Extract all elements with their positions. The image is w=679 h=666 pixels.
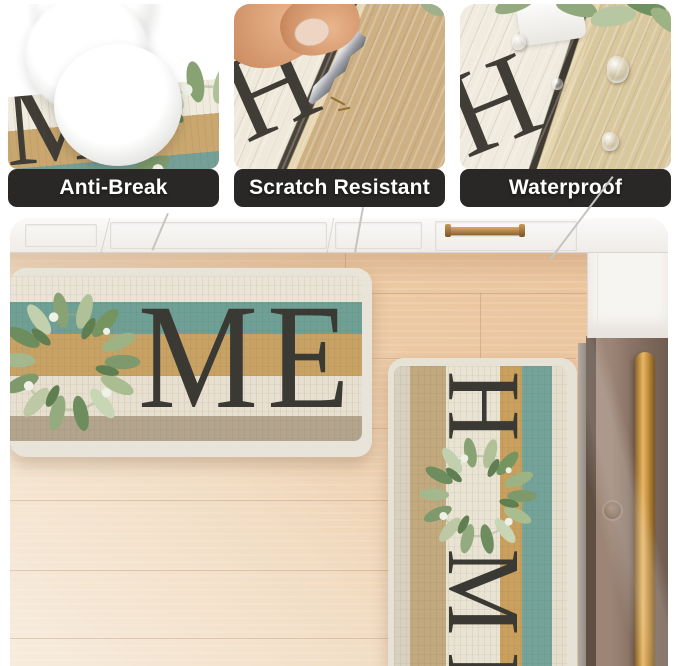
wreath-graphic	[416, 434, 540, 558]
falling-plate	[54, 44, 182, 166]
feature-card-waterproof: H Waterproof	[460, 4, 671, 207]
feature-label: Scratch Resistant	[249, 176, 430, 200]
mat-text: ME	[138, 282, 359, 432]
kitchen-mat-vertical: H M E	[388, 358, 577, 666]
feature-label: Waterproof	[509, 176, 622, 200]
brass-door-handle	[635, 352, 655, 666]
wall-edge	[578, 343, 586, 666]
cabinet-emblem	[604, 502, 621, 519]
wreath-graphic	[10, 288, 144, 436]
anti-break-photo: M	[8, 4, 219, 169]
feature-label: Anti-Break	[59, 176, 167, 200]
cabinet-panel	[25, 224, 97, 247]
cabinet-panel	[110, 222, 327, 249]
cabinet-panel	[435, 221, 577, 251]
kitchen-mat-horizontal: ME	[10, 268, 372, 457]
product-image: M Anti-Break H Scratch Resistant	[0, 0, 679, 666]
feature-card-anti-break: M Anti-Break	[8, 4, 219, 207]
cabinet-edge	[101, 218, 111, 253]
kitchen-photo: ME H M E	[10, 218, 668, 666]
cabinet-edge	[327, 218, 335, 253]
cabinet-panel	[335, 222, 422, 249]
mat-letter: H	[431, 371, 535, 442]
glass-cabinet	[586, 336, 668, 666]
feature-label-bar: Waterproof	[460, 169, 671, 207]
brass-drawer-pull	[447, 227, 523, 235]
feature-label-bar: Scratch Resistant	[234, 169, 445, 207]
mat-letter: E	[431, 652, 535, 666]
mat-letter: M	[431, 549, 535, 636]
feature-card-scratch-resistant: H Scratch Resistant	[234, 4, 445, 207]
white-cabinets	[10, 218, 668, 253]
floor-seam	[480, 293, 481, 358]
waterproof-photo: H	[460, 4, 671, 169]
scratch-resistant-photo: H	[234, 4, 445, 169]
feature-label-bar: Anti-Break	[8, 169, 219, 207]
